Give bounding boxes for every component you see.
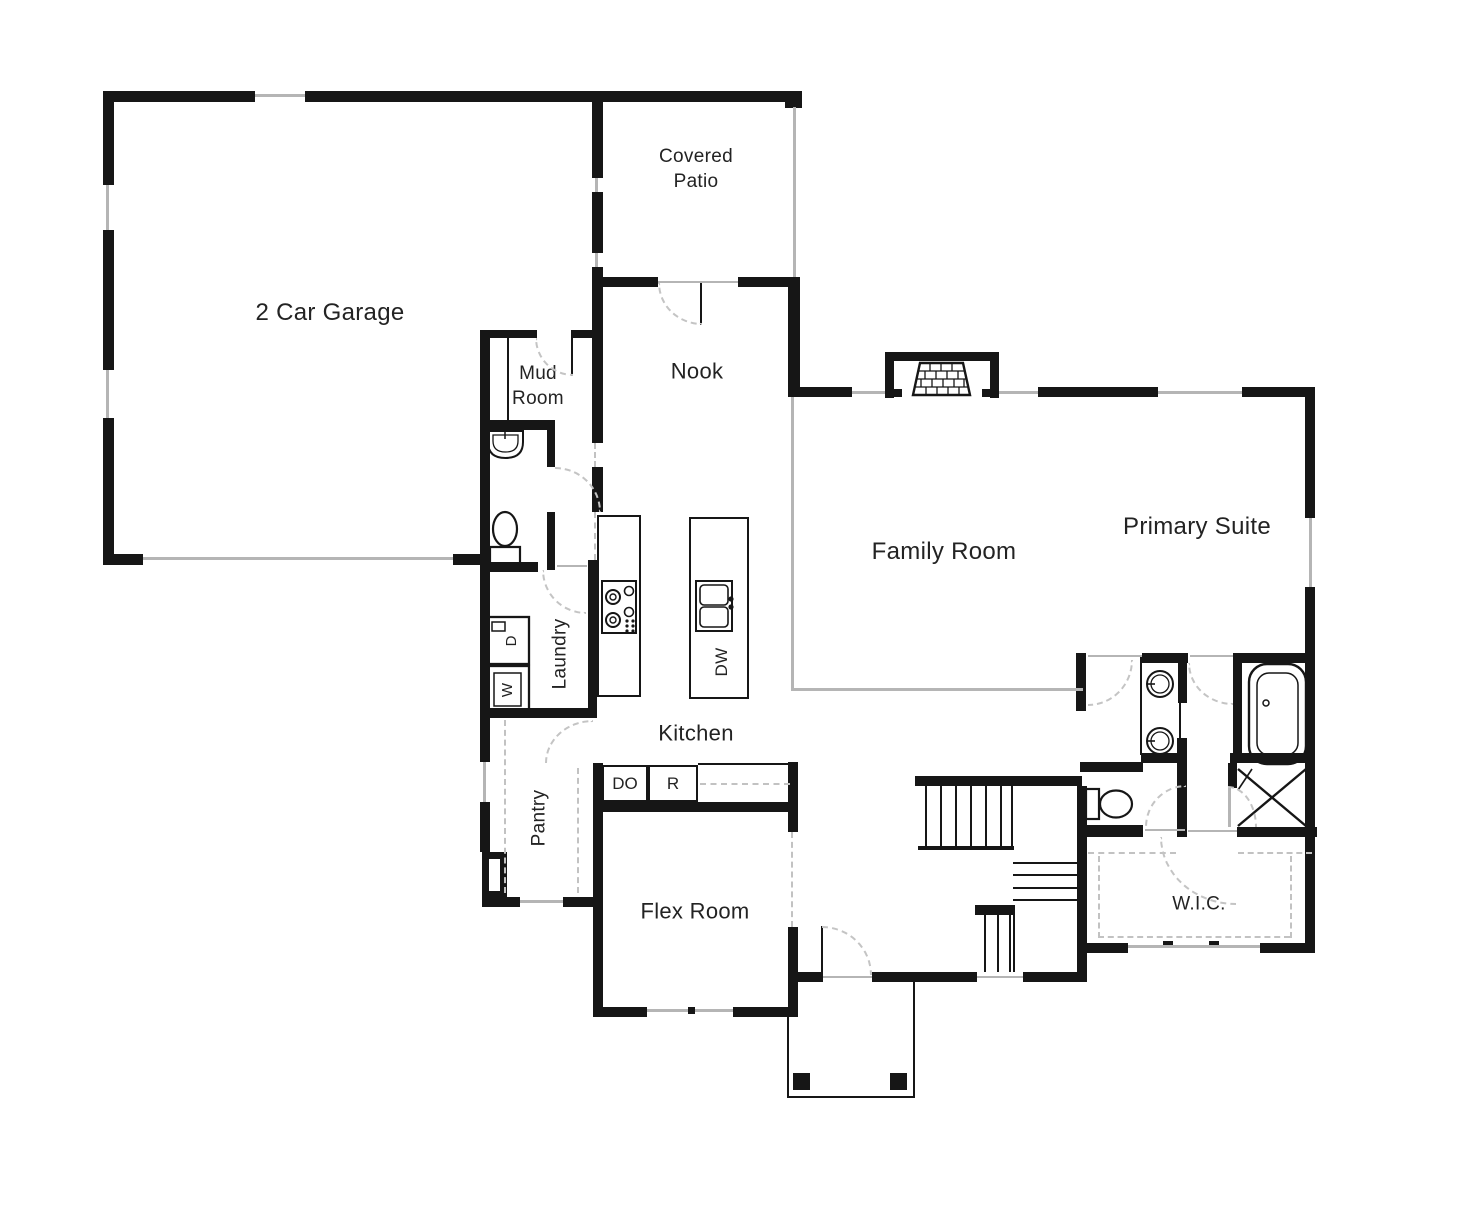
room-label-nook: Nook (671, 356, 724, 385)
wall-segment (593, 802, 798, 812)
window-line (852, 391, 885, 394)
window-line (595, 178, 598, 192)
window-line (999, 391, 1038, 394)
wall-segment (793, 1073, 810, 1090)
window-line (1188, 830, 1237, 832)
dashed-line (1290, 856, 1292, 938)
dashed-line (594, 512, 596, 560)
window-line (1145, 829, 1185, 831)
wall-segment (1077, 786, 1087, 982)
dashed-line (577, 768, 579, 893)
wall-segment (1237, 827, 1317, 837)
wall-segment (890, 1073, 907, 1090)
room-label-covered-patio: Covered Patio (646, 144, 746, 194)
wall-segment (480, 420, 555, 430)
wall-segment (480, 708, 595, 718)
thin-line (1013, 874, 1077, 876)
thin-line (925, 786, 927, 848)
wall-segment (588, 560, 597, 718)
wall-segment (785, 91, 802, 108)
wall-segment (872, 972, 977, 982)
thin-line (698, 763, 790, 765)
thin-line (955, 786, 957, 848)
wall-segment (103, 554, 143, 565)
wall-segment (103, 102, 114, 185)
window-line (977, 976, 1023, 978)
wall-segment (480, 330, 537, 338)
wall-segment (563, 897, 595, 907)
door-swing-arc (542, 570, 586, 614)
window-line (1190, 655, 1233, 657)
thin-line (1013, 862, 1077, 864)
window-line (791, 688, 1083, 691)
wall-segment (1081, 943, 1128, 953)
window-line (647, 1009, 688, 1012)
window-line (255, 94, 305, 97)
wall-segment (788, 762, 798, 832)
thin-line (1009, 915, 1011, 972)
thin-line (1013, 899, 1077, 901)
wall-segment (592, 192, 603, 253)
wall-segment (1076, 653, 1086, 711)
wall-segment (480, 330, 490, 570)
wall-segment (788, 387, 852, 397)
wall-segment (1230, 753, 1315, 763)
thin-line (507, 338, 509, 420)
wall-segment (547, 430, 555, 467)
thin-line (997, 915, 999, 972)
door-swing-arc (1145, 785, 1186, 827)
wall-segment (103, 91, 255, 102)
room-label-pantry: Pantry (526, 790, 551, 847)
wall-segment (788, 277, 800, 397)
thin-line (1013, 905, 1015, 972)
room-label-kitchen: Kitchen (658, 718, 733, 747)
window-line (823, 976, 872, 978)
wall-segment (688, 1007, 695, 1014)
door-swing-arc (1228, 786, 1257, 827)
thin-line (1000, 786, 1002, 848)
thin-line (918, 846, 1014, 850)
window-line (106, 185, 109, 230)
wall-segment (1178, 653, 1187, 703)
window-line (143, 557, 453, 560)
wall-segment (480, 570, 490, 718)
range-label: R (667, 774, 679, 794)
wall-segment (1228, 763, 1237, 788)
window-line (1158, 391, 1242, 394)
wall-segment (1080, 762, 1143, 772)
window-line (520, 900, 563, 903)
wall-segment (1038, 387, 1158, 397)
thin-line (985, 786, 987, 848)
dashed-line (791, 832, 793, 927)
wall-segment (305, 91, 603, 102)
window-line (1309, 518, 1312, 587)
door-swing-arc (658, 283, 702, 325)
wall-segment (788, 927, 798, 1017)
thin-line (913, 982, 915, 1098)
room-label-primary-suite: Primary Suite (1123, 511, 1271, 543)
wall-segment (1233, 653, 1305, 663)
dashed-line (504, 720, 506, 893)
dashed-line (700, 783, 790, 785)
dashed-line (1238, 852, 1312, 854)
wall-segment (593, 1007, 647, 1017)
wall-segment (480, 718, 490, 762)
wall-segment (1233, 653, 1242, 758)
window-line (1088, 655, 1142, 657)
dryer (486, 617, 529, 664)
room-label-laundry: Laundry (547, 619, 572, 690)
thin-line (1011, 786, 1013, 848)
wall-segment (592, 267, 603, 443)
wall-segment (885, 352, 999, 361)
door-swing-arc (1088, 660, 1133, 706)
wall-segment (1023, 972, 1087, 982)
wall-segment (975, 905, 1013, 915)
wall-segment (1305, 587, 1315, 952)
wall-segment (103, 230, 114, 370)
room-label-family-room: Family Room (872, 536, 1017, 568)
wall-segment (103, 418, 114, 565)
window-line (557, 565, 587, 567)
thin-line (970, 786, 972, 848)
window-line (695, 1009, 733, 1012)
dashed-line (594, 443, 596, 467)
wall-segment (571, 330, 592, 338)
dashed-line (1098, 936, 1290, 938)
powder-toilet (490, 512, 520, 564)
wall-segment (480, 802, 490, 852)
dryer-label: D (503, 635, 520, 646)
range-box: R (648, 765, 698, 802)
wall-segment (1305, 387, 1315, 518)
cooktop-counter (598, 516, 640, 696)
wall-segment (1260, 943, 1315, 953)
window-line (1128, 945, 1260, 948)
double-oven-label: DO (612, 774, 638, 794)
room-label-garage: 2 Car Garage (255, 297, 404, 329)
window-line (791, 397, 794, 688)
wall-segment (885, 389, 902, 397)
wall-segment (798, 972, 823, 982)
washer (486, 666, 529, 713)
wall-segment (603, 91, 785, 102)
window-line (483, 762, 486, 802)
thin-line (940, 786, 942, 848)
wall-segment (547, 512, 555, 570)
bathtub (1249, 664, 1306, 764)
thin-line (787, 1017, 789, 1098)
fireplace-brick (913, 363, 970, 395)
dashed-line (1098, 856, 1100, 938)
door-swing-arc (545, 720, 593, 763)
floor-plan-canvas: D W DO R 2 Car Garage Covered Patio Mud … (0, 0, 1458, 1232)
thin-line (984, 915, 986, 972)
door-swing-arc (822, 926, 872, 975)
room-label-flex-room: Flex Room (640, 896, 749, 925)
wall-segment (482, 897, 520, 907)
vanity-double-sink (1141, 658, 1180, 754)
window-line (793, 107, 796, 277)
wall-segment (915, 776, 1082, 786)
door-swing-arc (1188, 663, 1233, 705)
window-line (106, 370, 109, 418)
window-line (595, 253, 598, 267)
double-oven-box: DO (602, 765, 648, 802)
wall-segment (592, 91, 603, 178)
thin-line (1013, 887, 1077, 889)
powder-sink (488, 431, 523, 458)
washer-label: W (499, 682, 516, 697)
stairs-toilet (1086, 789, 1132, 819)
wall-segment (603, 277, 658, 287)
wall-segment (982, 389, 999, 397)
thin-line (787, 1096, 915, 1098)
dishwasher-label: DW (711, 648, 733, 677)
